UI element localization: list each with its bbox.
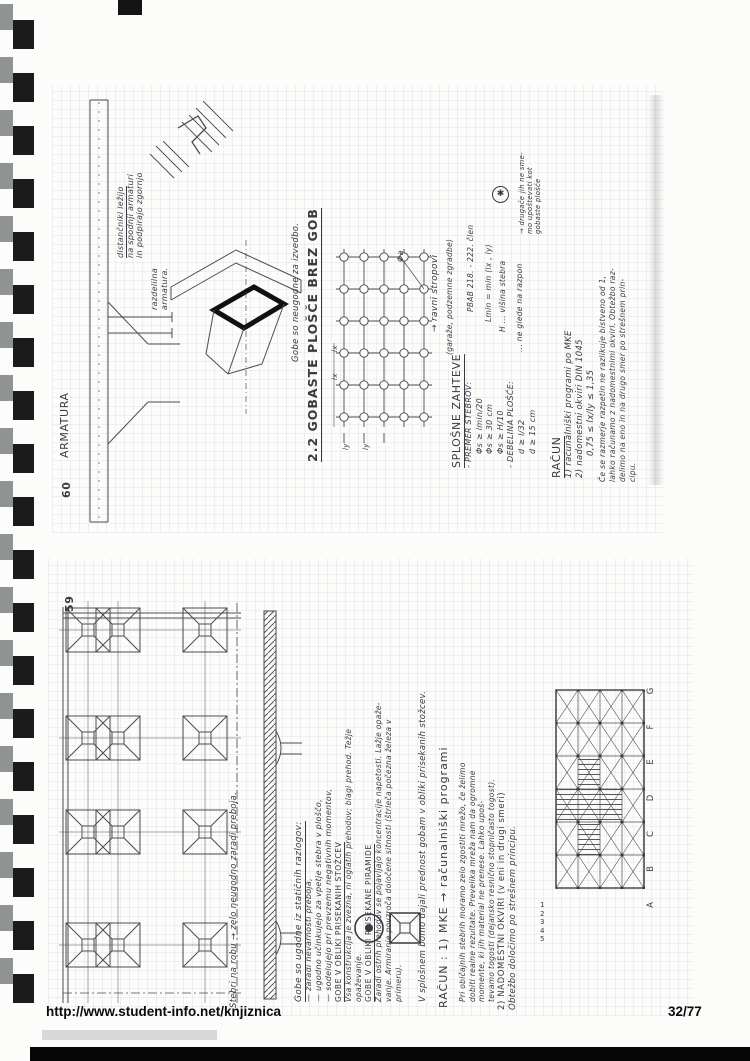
edge-column-label: Stebri na robu → zelo neugodno zaradi pr…	[229, 778, 239, 1008]
grid-label-lx-1: lx	[331, 358, 339, 380]
spiral-binding	[0, 4, 13, 1006]
section-heading: 2.2 GOBASTE PLOŠČE BREZ GOB	[305, 227, 320, 462]
racun-block-60: RAČUN 1) računalniški programi po MKE 2)…	[550, 233, 597, 478]
scanned-page: distančniki ležijo na spodnji armaturi i…	[0, 0, 750, 1061]
grid-label-phi: Φa	[396, 240, 405, 262]
spacers-note: distančniki ležijo na spodnji armaturi i…	[116, 93, 145, 258]
pbab-reference: PBAB 218. - 222. člen	[466, 230, 475, 312]
drugace-note: → drugače jih ne sme-mo upoštevati kotgo…	[518, 149, 542, 234]
asterisk-mark: ✱	[492, 186, 509, 203]
page-number-59: 59	[63, 590, 76, 612]
spiral-binding-holes	[13, 20, 34, 1022]
racun-paragraph-60: Če se razmerje razpetin ne razlikuje bis…	[598, 147, 638, 482]
scan-bottom-edge	[30, 1047, 750, 1061]
page-number-60: 60	[60, 476, 73, 498]
scan-shadow	[648, 95, 664, 485]
scan-smudge	[42, 1030, 217, 1040]
splosnem-note: V splošnem bomo dajali prednost gobam v …	[418, 607, 428, 1002]
grid-label-ly-2: ly	[362, 430, 370, 450]
armatura-label: ARMATURA	[58, 378, 71, 458]
ravni-stropovi-note: → ravni stropovi	[430, 227, 440, 332]
splosne-zahteve-block: SPLOŠNE ZAHTEVE - PREMER STEBROV: Φs ≥ l…	[450, 313, 538, 468]
gobe-ugodne-block: Gobe so ugodne iz statičnih razlogov: — …	[294, 734, 404, 1002]
grid-axis-letters: AB CD EF G	[644, 686, 658, 910]
racun-title-59: RAČUN : 1) MKE → računalniški programi	[437, 588, 450, 1008]
page-indicator: 32/77	[668, 1004, 702, 1019]
footer-url: http://www.student-info.net/knjiznica	[46, 1004, 281, 1019]
grid-label-ly-1: ly	[342, 430, 350, 450]
racun-paragraph-59: Pri običajnih stebrih moramo zelo zgosti…	[458, 602, 496, 1002]
spacers-sketch	[148, 96, 240, 184]
lmin-note: Lmin = min (lx , ly)	[484, 230, 493, 322]
scan-edge-mark	[118, 0, 142, 15]
capital-3d-sketch	[166, 232, 306, 422]
column-grid-drawing	[330, 235, 442, 460]
razdelilna-label: razdelilnaarmatura.	[150, 232, 169, 310]
grid-axis-numbers: 12 34 5	[540, 901, 550, 943]
nadomestni-okviri-block: 2) NADOMESTNI OKVIRI (v eni in drugi sme…	[497, 675, 519, 1010]
grid-label-lx-2: lx	[331, 330, 339, 352]
gobe-neugodne-note: Gobe so neugodne za izvedbo.	[291, 227, 301, 362]
